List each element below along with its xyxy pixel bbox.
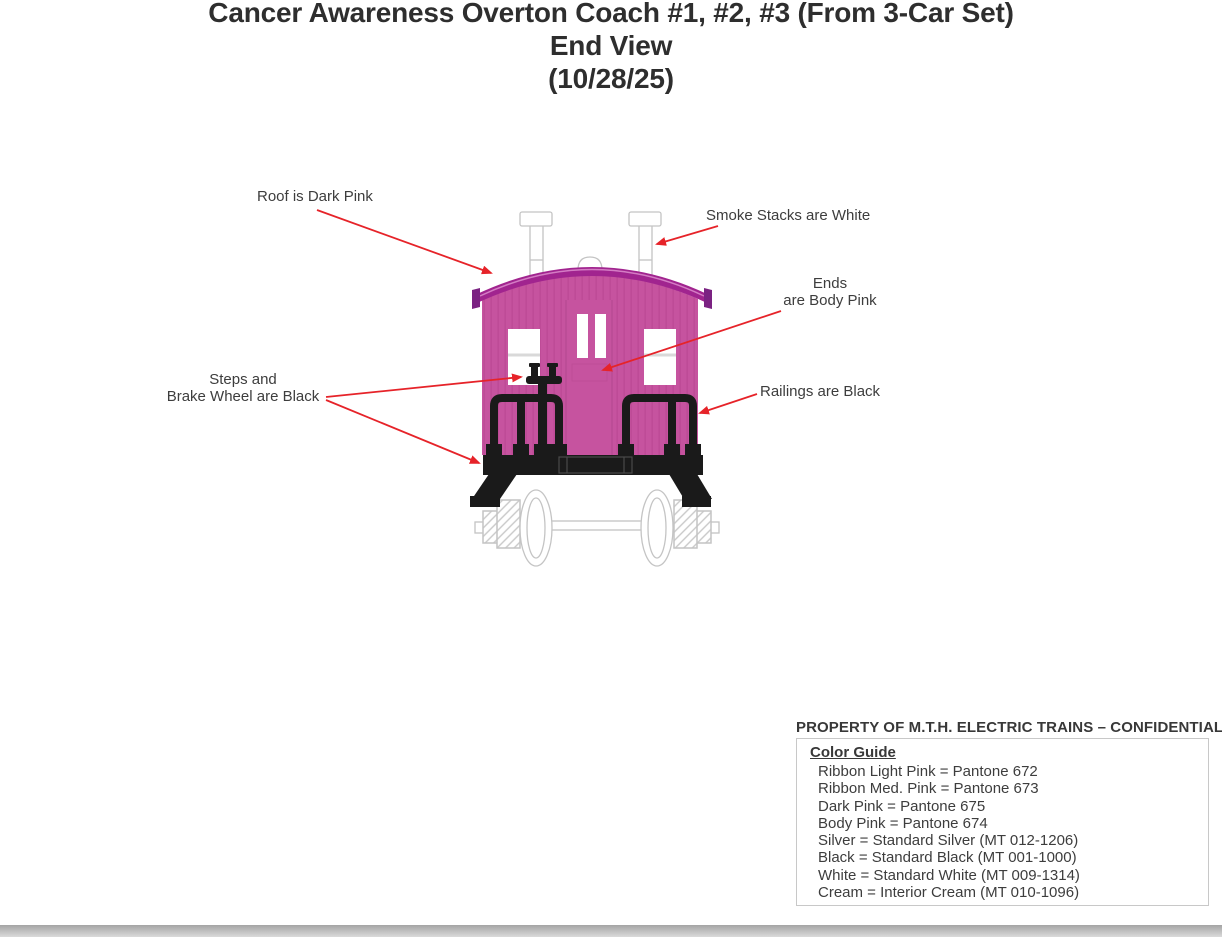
smoke-stack-left-pipe bbox=[530, 224, 543, 278]
wheel-right bbox=[641, 490, 673, 566]
color-guide-item: Dark Pink = Pantone 675 bbox=[818, 798, 1208, 815]
bottom-divider-bar bbox=[0, 925, 1222, 937]
page: Cancer Awareness Overton Coach #1, #2, #… bbox=[0, 0, 1222, 937]
callout-steps: Steps and Brake Wheel are Black bbox=[162, 372, 324, 405]
journal-box-left bbox=[483, 500, 520, 548]
window-right bbox=[644, 329, 676, 385]
train-end-view-diagram bbox=[440, 200, 730, 580]
platform bbox=[483, 455, 703, 475]
door-window-right bbox=[595, 314, 606, 358]
callout-roof: Roof is Dark Pink bbox=[257, 189, 373, 206]
axle bbox=[551, 521, 642, 530]
color-guide-item: Ribbon Med. Pink = Pantone 673 bbox=[818, 780, 1208, 797]
callout-ends-line-1: Ends bbox=[778, 276, 882, 293]
page-title: Cancer Awareness Overton Coach #1, #2, #… bbox=[0, 0, 1222, 95]
smoke-stack-right-pipe bbox=[639, 224, 652, 278]
color-guide-item: Black = Standard Black (MT 001-1000) bbox=[818, 849, 1208, 866]
wheel-left bbox=[520, 490, 552, 566]
title-line-3: (10/28/25) bbox=[0, 62, 1222, 95]
callout-smoke-stacks: Smoke Stacks are White bbox=[706, 208, 870, 225]
door-window-left bbox=[577, 314, 588, 358]
callout-steps-line-1: Steps and bbox=[162, 372, 324, 389]
callout-railings: Railings are Black bbox=[760, 384, 880, 401]
color-guide-box: Color Guide Ribbon Light Pink = Pantone … bbox=[796, 738, 1209, 906]
property-notice: PROPERTY OF M.T.H. ELECTRIC TRAINS – CON… bbox=[796, 719, 1210, 736]
callout-ends: Ends are Body Pink bbox=[778, 276, 882, 309]
color-guide-item: Ribbon Light Pink = Pantone 672 bbox=[818, 763, 1208, 780]
title-line-2: End View bbox=[0, 29, 1222, 62]
roof-cap-right bbox=[704, 288, 712, 309]
color-guide-item: White = Standard White (MT 009-1314) bbox=[818, 867, 1208, 884]
smoke-stack-left-cap bbox=[520, 212, 552, 226]
color-guide-item: Body Pink = Pantone 674 bbox=[818, 815, 1208, 832]
color-guide-heading: Color Guide bbox=[810, 744, 1208, 761]
callout-steps-line-2: Brake Wheel are Black bbox=[162, 389, 324, 406]
roof-cap-left bbox=[472, 288, 480, 309]
title-line-1: Cancer Awareness Overton Coach #1, #2, #… bbox=[0, 0, 1222, 29]
color-guide-item: Cream = Interior Cream (MT 010-1096) bbox=[818, 884, 1208, 901]
callout-ends-line-2: are Body Pink bbox=[778, 293, 882, 310]
journal-box-right bbox=[674, 500, 711, 548]
smoke-stack-right-cap bbox=[629, 212, 661, 226]
color-guide-item: Silver = Standard Silver (MT 012-1206) bbox=[818, 832, 1208, 849]
